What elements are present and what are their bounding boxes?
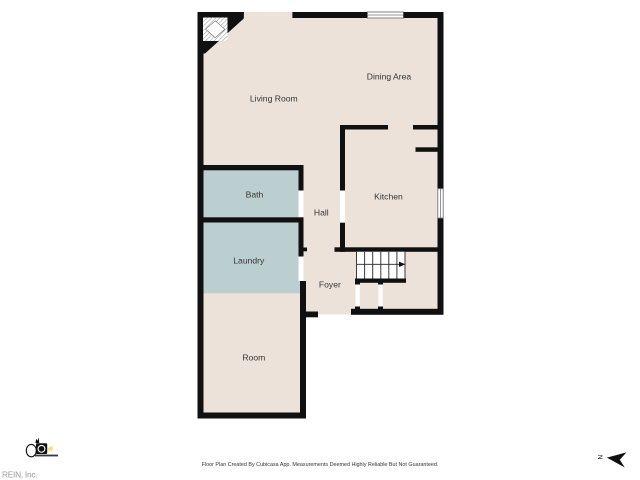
svg-text:Dining Area: Dining Area [367,71,412,81]
svg-text:Laundry: Laundry [233,255,265,265]
svg-text:REIN, Inc.: REIN, Inc. [2,469,37,479]
svg-text:Living Room: Living Room [250,94,298,104]
svg-text:Hall: Hall [314,207,329,217]
svg-text:Foyer: Foyer [319,280,341,290]
svg-text:Kitchen: Kitchen [374,191,403,201]
svg-text:Floor Plan Created By Cubicasa: Floor Plan Created By Cubicasa App. Meas… [202,462,439,468]
svg-text:N: N [598,455,605,460]
svg-text:Bath: Bath [246,190,264,200]
svg-text:Room: Room [242,352,265,362]
